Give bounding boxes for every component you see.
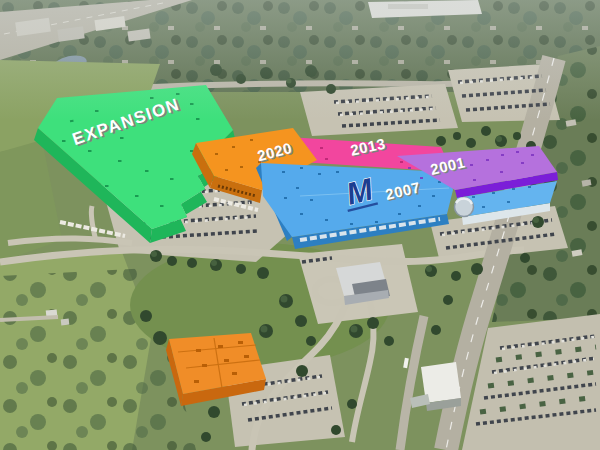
aerial-scene: EXPANSION EXPANSION 2020 2020 2013 2013 …	[0, 0, 600, 450]
aerial-photo: EXPANSION EXPANSION 2020 2020 2013 2013 …	[0, 0, 600, 450]
horizon-haze	[0, 0, 600, 120]
